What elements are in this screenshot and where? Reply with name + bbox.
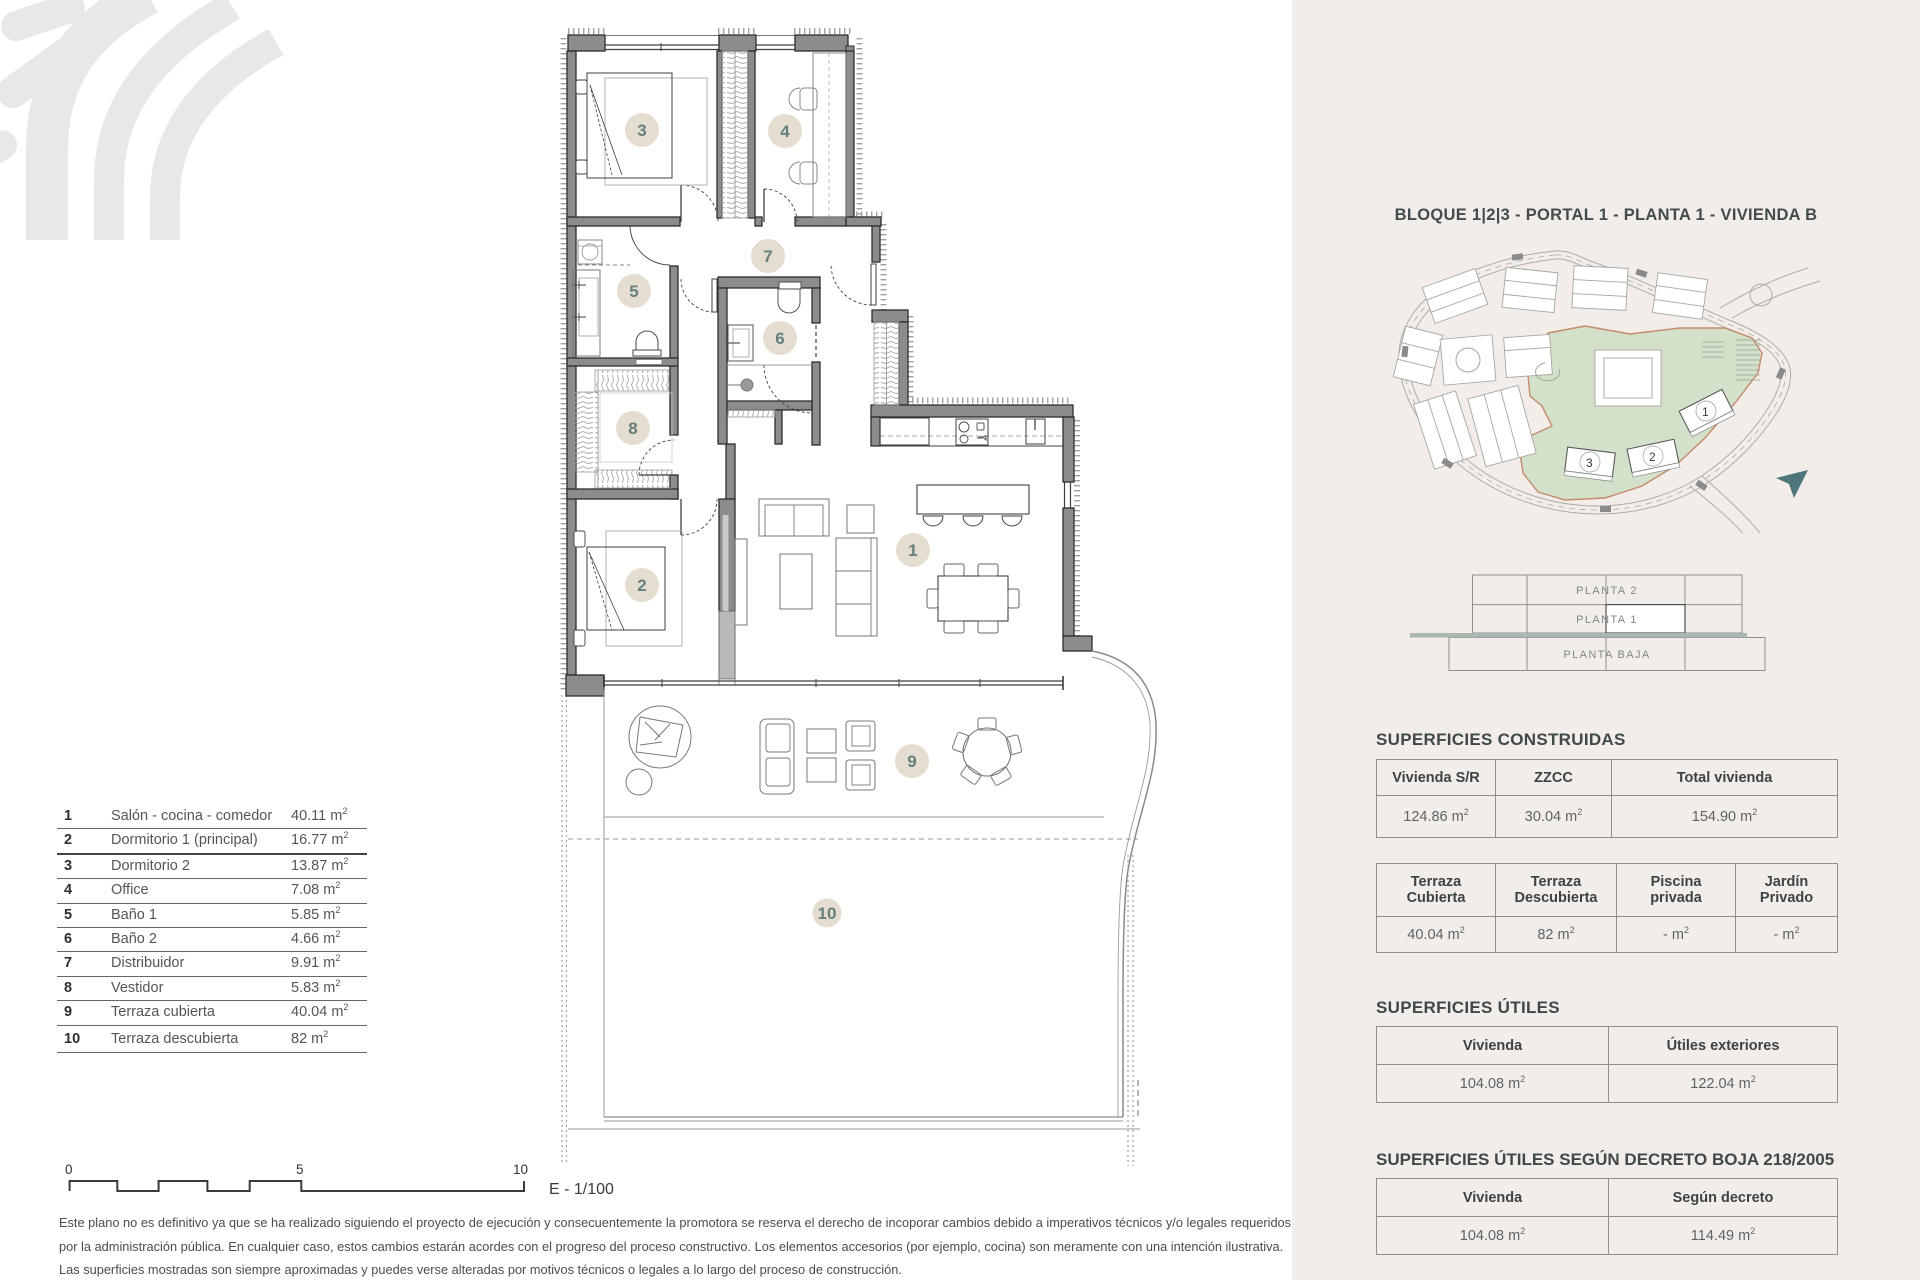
svg-text:10: 10 <box>818 904 837 923</box>
svg-text:PLANTA 2: PLANTA 2 <box>1576 585 1638 597</box>
svg-text:1: 1 <box>908 541 917 560</box>
svg-text:7: 7 <box>763 247 772 266</box>
svg-text:0: 0 <box>65 1162 73 1177</box>
svg-text:10: 10 <box>513 1162 528 1177</box>
svg-text:5: 5 <box>296 1162 304 1177</box>
svg-text:3: 3 <box>1586 456 1593 470</box>
svg-text:PLANTA 1: PLANTA 1 <box>1576 614 1638 626</box>
svg-text:2: 2 <box>637 576 646 595</box>
svg-text:5: 5 <box>629 282 638 301</box>
svg-text:4: 4 <box>780 122 790 141</box>
svg-text:6: 6 <box>775 329 784 348</box>
svg-text:8: 8 <box>628 419 637 438</box>
svg-text:3: 3 <box>637 121 646 140</box>
svg-text:2: 2 <box>1649 450 1656 464</box>
svg-text:9: 9 <box>907 752 916 771</box>
svg-text:1: 1 <box>1702 405 1709 419</box>
svg-text:PLANTA BAJA: PLANTA BAJA <box>1563 649 1650 661</box>
